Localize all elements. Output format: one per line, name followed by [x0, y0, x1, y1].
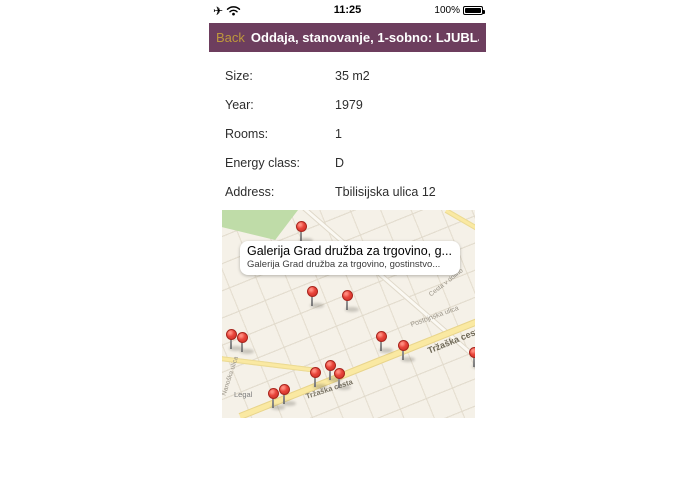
- pin-head-icon: [334, 368, 345, 379]
- pin-head-icon: [237, 332, 248, 343]
- detail-label: Size:: [225, 69, 253, 83]
- detail-row-year: Year: 1979: [209, 91, 486, 120]
- callout-subtitle: Galerija Grad družba za trgovino, gostin…: [247, 259, 453, 270]
- pin-head-icon: [296, 221, 307, 232]
- pin-head-icon: [469, 347, 476, 358]
- callout-title: Galerija Grad družba za trgovino, g...: [247, 244, 453, 258]
- pin-head-icon: [398, 340, 409, 351]
- map-park-area: [222, 210, 298, 240]
- map-road: [445, 210, 475, 233]
- map-legal-link[interactable]: Legal: [234, 390, 252, 399]
- map-pin[interactable]: [236, 332, 248, 356]
- page-title: Oddaja, stanovanje, 1-sobno: LJUBLJ...: [251, 30, 479, 45]
- status-bar: ✈ 11:25 100%: [209, 0, 486, 21]
- detail-row-size: Size: 35 m2: [209, 62, 486, 91]
- pin-head-icon: [342, 290, 353, 301]
- detail-value: Tbilisijska ulica 12: [335, 185, 436, 199]
- pin-head-icon: [268, 388, 279, 399]
- map-pin[interactable]: [468, 347, 475, 371]
- pin-head-icon: [226, 329, 237, 340]
- detail-row-address: Address: Tbilisijska ulica 12: [209, 178, 486, 207]
- map-pin[interactable]: [278, 384, 290, 408]
- map-view[interactable]: Tržaška cestaTržaška cestaPostojnska uli…: [222, 210, 475, 418]
- back-button[interactable]: Back: [216, 30, 245, 45]
- pin-head-icon: [279, 384, 290, 395]
- battery-icon: [463, 6, 483, 15]
- map-pin[interactable]: [375, 331, 387, 355]
- detail-value: D: [335, 156, 344, 170]
- phone-screen: ✈ 11:25 100% Back Oddaja, stanovanje, 1-…: [209, 0, 486, 494]
- map-pin[interactable]: [267, 388, 279, 412]
- detail-row-rooms: Rooms: 1: [209, 120, 486, 149]
- battery-percent-label: 100%: [434, 5, 460, 16]
- detail-value: 1979: [335, 98, 363, 112]
- map-pin[interactable]: [306, 286, 318, 310]
- detail-value: 35 m2: [335, 69, 370, 83]
- pin-head-icon: [310, 367, 321, 378]
- nav-bar: Back Oddaja, stanovanje, 1-sobno: LJUBLJ…: [209, 23, 486, 52]
- pin-head-icon: [307, 286, 318, 297]
- detail-label: Address:: [225, 185, 274, 199]
- detail-row-energy-class: Energy class: D: [209, 149, 486, 178]
- status-bar-right: 100%: [434, 3, 483, 18]
- detail-label: Rooms:: [225, 127, 268, 141]
- map-pin[interactable]: [309, 367, 321, 391]
- map-callout[interactable]: Galerija Grad družba za trgovino, g... G…: [240, 241, 460, 275]
- detail-label: Energy class:: [225, 156, 300, 170]
- map-pin[interactable]: [341, 290, 353, 314]
- pin-head-icon: [376, 331, 387, 342]
- map-pin[interactable]: [333, 368, 345, 392]
- detail-value: 1: [335, 127, 342, 141]
- detail-label: Year:: [225, 98, 254, 112]
- map-pin[interactable]: [397, 340, 409, 364]
- listing-details: Size: 35 m2 Year: 1979 Rooms: 1 Energy c…: [209, 62, 486, 207]
- screenshot-canvas: ✈ 11:25 100% Back Oddaja, stanovanje, 1-…: [0, 0, 695, 494]
